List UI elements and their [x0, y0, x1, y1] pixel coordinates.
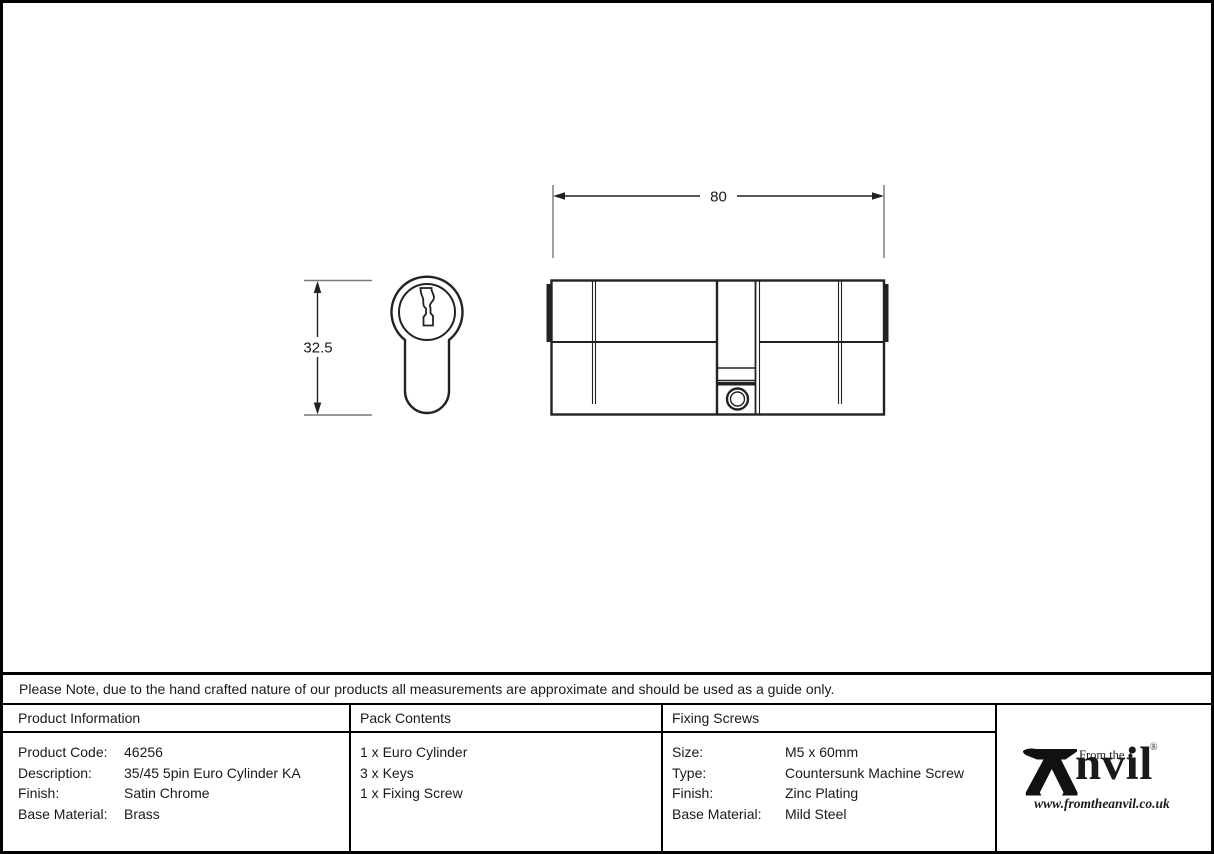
left-end-chamfer	[547, 284, 552, 342]
arrowhead-left-icon	[553, 192, 565, 200]
from-the-anvil-logo: nvil From the ♦ ® www.fromtheanvil.co.uk	[1022, 743, 1182, 819]
registered-trademark-icon: ®	[1150, 742, 1158, 753]
row-value: Satin Chrome	[124, 783, 210, 804]
right-end-chamfer	[884, 284, 889, 342]
row-label: Product Code:	[18, 742, 124, 763]
table-row: Type: Countersunk Machine Screw	[663, 763, 995, 784]
row-value: Countersunk Machine Screw	[785, 763, 964, 784]
row-label: Base Material:	[672, 804, 785, 825]
table-row: Base Material: Mild Steel	[663, 804, 995, 825]
row-label: Description:	[18, 763, 124, 784]
fixing-screws-content: Size: M5 x 60mm Type: Countersunk Machin…	[663, 733, 995, 824]
table-row: Base Material: Brass	[3, 804, 349, 825]
row-label: Base Material:	[18, 804, 124, 825]
pack-contents-content: 1 x Euro Cylinder 3 x Keys 1 x Fixing Sc…	[351, 733, 661, 804]
row-value: M5 x 60mm	[785, 742, 858, 763]
column-header-label: Product Information	[18, 710, 140, 726]
table-row: Product Code: 46256	[3, 742, 349, 763]
width-dimension: 80	[553, 185, 884, 258]
table-row: Size: M5 x 60mm	[663, 742, 995, 763]
row-value: 35/45 5pin Euro Cylinder KA	[124, 763, 301, 784]
cylinder-front-view	[392, 277, 463, 413]
row-label: Type:	[672, 763, 785, 784]
row-value: Mild Steel	[785, 804, 846, 825]
height-dimension-value: 32.5	[303, 340, 332, 357]
row-label: Finish:	[18, 783, 124, 804]
table-row: Finish: Zinc Plating	[663, 783, 995, 804]
spec-table: Please Note, due to the hand crafted nat…	[3, 672, 1211, 851]
arrowhead-up-icon	[314, 281, 322, 293]
cylinder-side-view	[547, 281, 889, 415]
product-information-content: Product Code: 46256 Description: 35/45 5…	[3, 733, 349, 824]
table-row: Finish: Satin Chrome	[3, 783, 349, 804]
height-dimension: 32.5	[303, 281, 372, 416]
column-header-label: Pack Contents	[360, 710, 451, 726]
product-information-column: Product Information Product Code: 46256 …	[3, 705, 351, 851]
spec-sheet-page: 80 32.5	[0, 0, 1214, 854]
list-item: 3 x Keys	[351, 763, 661, 784]
technical-drawing: 80 32.5	[3, 3, 1211, 672]
pack-contents-header: Pack Contents	[351, 705, 661, 733]
column-header-label: Fixing Screws	[672, 710, 759, 726]
brand-name-text: nvil	[1075, 737, 1153, 791]
anvil-icon	[1022, 747, 1078, 797]
measurement-note-row: Please Note, due to the hand crafted nat…	[3, 675, 1211, 705]
brand-website: www.fromtheanvil.co.uk	[1022, 796, 1182, 812]
row-label: Size:	[672, 742, 785, 763]
fixing-screws-column: Fixing Screws Size: M5 x 60mm Type: Coun…	[663, 705, 997, 851]
measurement-note-text: Please Note, due to the hand crafted nat…	[19, 681, 834, 697]
arrowhead-right-icon	[872, 192, 884, 200]
brand-logo-cell: nvil From the ♦ ® www.fromtheanvil.co.uk	[997, 705, 1211, 851]
brand-tagline: From the ♦	[1079, 748, 1133, 763]
spec-table-body: Product Information Product Code: 46256 …	[3, 705, 1211, 851]
width-dimension-value: 80	[710, 189, 727, 206]
fixing-screws-header: Fixing Screws	[663, 705, 995, 733]
pack-contents-column: Pack Contents 1 x Euro Cylinder 3 x Keys…	[351, 705, 663, 851]
table-row: Description: 35/45 5pin Euro Cylinder KA	[3, 763, 349, 784]
row-label: Finish:	[672, 783, 785, 804]
diamond-icon: ♦	[1128, 750, 1134, 762]
tagline-text: From the	[1079, 748, 1124, 762]
screw-hole-housing-top	[718, 382, 756, 386]
arrowhead-down-icon	[314, 403, 322, 415]
list-item: 1 x Fixing Screw	[351, 783, 661, 804]
row-value: Zinc Plating	[785, 783, 858, 804]
row-value: 46256	[124, 742, 163, 763]
row-value: Brass	[124, 804, 160, 825]
list-item: 1 x Euro Cylinder	[351, 742, 661, 763]
product-information-header: Product Information	[3, 705, 349, 733]
